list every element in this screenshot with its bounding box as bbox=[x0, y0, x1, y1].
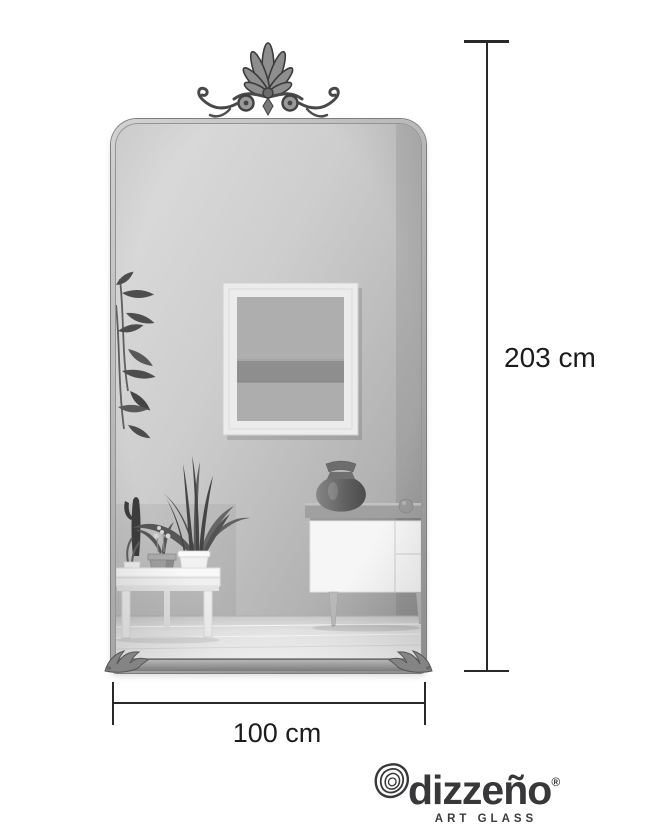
height-label: 203 cm bbox=[504, 344, 596, 372]
vignette bbox=[116, 124, 421, 658]
crest-ornament-icon bbox=[186, 35, 351, 121]
frame-bottom-rail bbox=[114, 659, 423, 671]
width-label: 100 cm bbox=[212, 720, 342, 747]
brand-name: dizzeño bbox=[408, 767, 551, 813]
brand-logo: dizzeño® ART GLASS bbox=[370, 757, 585, 832]
height-dimension-line bbox=[486, 41, 488, 672]
corner-flourish-left-icon bbox=[104, 647, 150, 673]
mirror-frame bbox=[111, 119, 426, 673]
corner-flourish-right-icon bbox=[387, 647, 433, 673]
product-dimension-figure: 203 cm 100 cm dizzeño® ART GLASS bbox=[0, 0, 645, 838]
logo-mark-icon bbox=[374, 763, 410, 799]
registered-mark: ® bbox=[551, 775, 560, 789]
mirror-reflection bbox=[116, 124, 421, 658]
width-dimension-line bbox=[113, 702, 425, 704]
width-dimension-cap-right bbox=[424, 682, 426, 725]
brand-tagline: ART GLASS bbox=[410, 813, 562, 825]
brand-wordmark: dizzeño® bbox=[408, 770, 560, 811]
height-dimension-cap-bottom bbox=[464, 670, 509, 672]
reflection-scene bbox=[116, 124, 421, 658]
